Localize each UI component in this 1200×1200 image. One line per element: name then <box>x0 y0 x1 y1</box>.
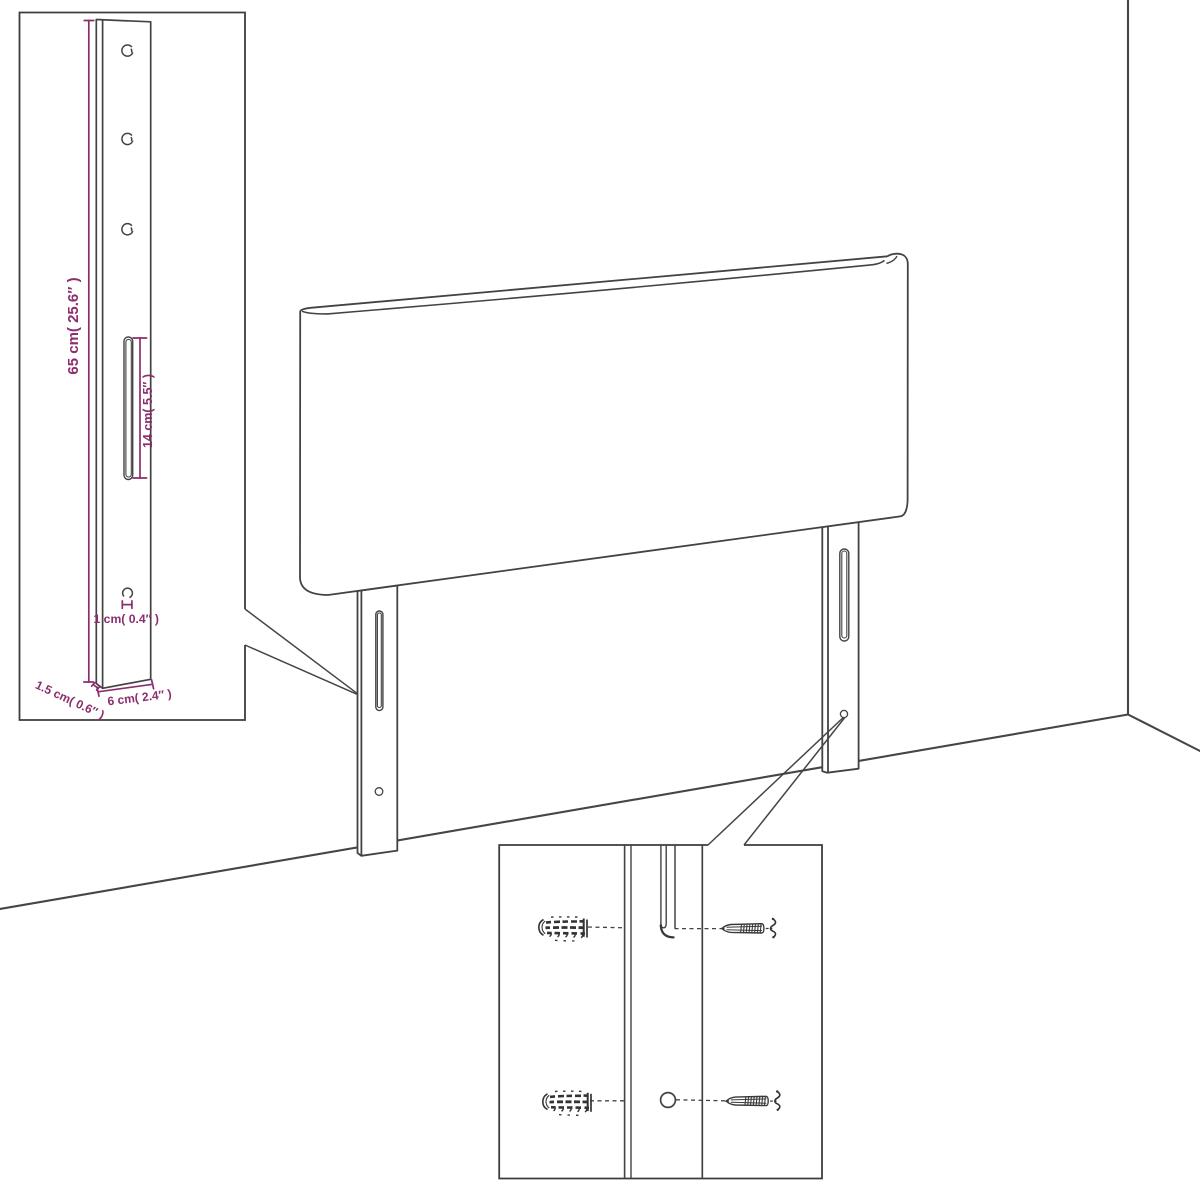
svg-text:14 cm( 5.5″ ): 14 cm( 5.5″ ) <box>141 374 155 448</box>
svg-text:1 cm( 0.4″ ): 1 cm( 0.4″ ) <box>94 612 159 626</box>
svg-text:65 cm( 25.6″ ): 65 cm( 25.6″ ) <box>65 277 82 374</box>
